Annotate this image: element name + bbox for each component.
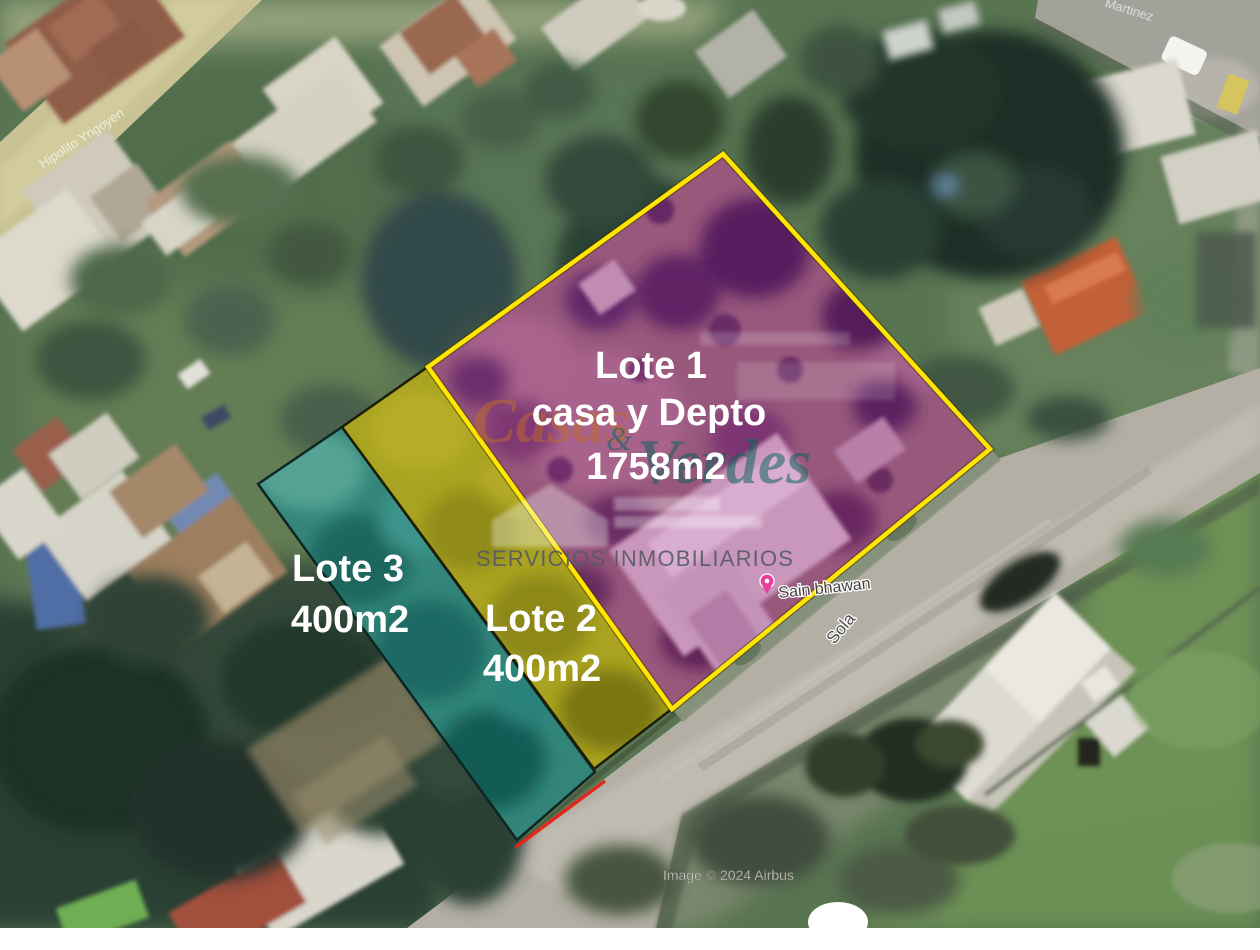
svg-text:Lote 2: Lote 2 bbox=[485, 598, 597, 640]
svg-text:400m2: 400m2 bbox=[483, 648, 601, 690]
svg-text:Lote 3: Lote 3 bbox=[292, 548, 404, 590]
svg-text:Lote 1: Lote 1 bbox=[595, 345, 707, 387]
svg-text:1758m2: 1758m2 bbox=[586, 446, 725, 488]
svg-text:Image © 2024 Airbus: Image © 2024 Airbus bbox=[663, 867, 794, 883]
svg-text:400m2: 400m2 bbox=[291, 599, 409, 641]
svg-text:casa y Depto: casa y Depto bbox=[532, 392, 766, 434]
svg-text:SERVICIOS INMOBILIARIOS: SERVICIOS INMOBILIARIOS bbox=[476, 546, 794, 571]
